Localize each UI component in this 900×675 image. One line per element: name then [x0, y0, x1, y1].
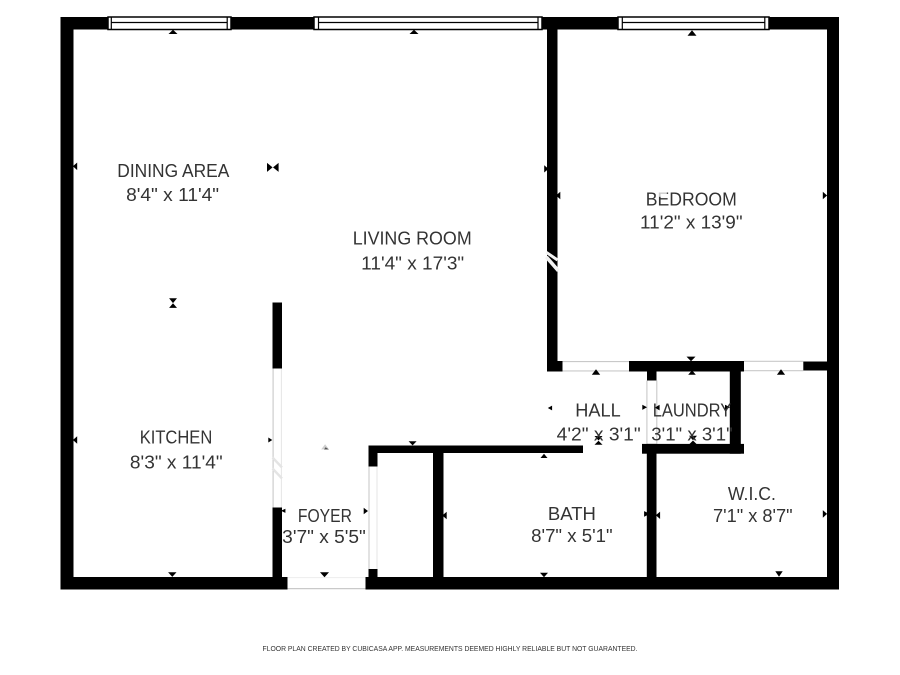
- svg-text:FLOOR PLAN CREATED BY CUBICASA: FLOOR PLAN CREATED BY CUBICASA APP. MEAS…: [263, 644, 638, 653]
- svg-text:8'3" x 11'4": 8'3" x 11'4": [130, 452, 223, 472]
- svg-text:HALL: HALL: [575, 401, 620, 421]
- svg-text:8'7" x 5'1": 8'7" x 5'1": [531, 526, 613, 546]
- svg-text:KITCHEN: KITCHEN: [140, 428, 213, 448]
- svg-text:LIVING ROOM: LIVING ROOM: [353, 229, 472, 249]
- svg-text:BATH: BATH: [548, 504, 596, 524]
- svg-text:DINING AREA: DINING AREA: [117, 161, 229, 181]
- svg-text:3'7" x 5'5": 3'7" x 5'5": [282, 527, 366, 547]
- svg-text:7'1" x 8'7": 7'1" x 8'7": [713, 506, 793, 526]
- svg-text:W.I.C.: W.I.C.: [728, 484, 776, 504]
- svg-text:FOYER: FOYER: [298, 506, 352, 526]
- svg-text:11'2" x 13'9": 11'2" x 13'9": [640, 213, 743, 233]
- svg-text:11'4" x 17'3": 11'4" x 17'3": [361, 253, 464, 273]
- svg-text:4'2" x 3'1": 4'2" x 3'1": [557, 424, 641, 444]
- svg-text:8'4" x 11'4": 8'4" x 11'4": [126, 185, 219, 205]
- svg-text:3'1" x 3'1": 3'1" x 3'1": [651, 424, 732, 444]
- svg-text:LAUNDRY: LAUNDRY: [653, 401, 732, 421]
